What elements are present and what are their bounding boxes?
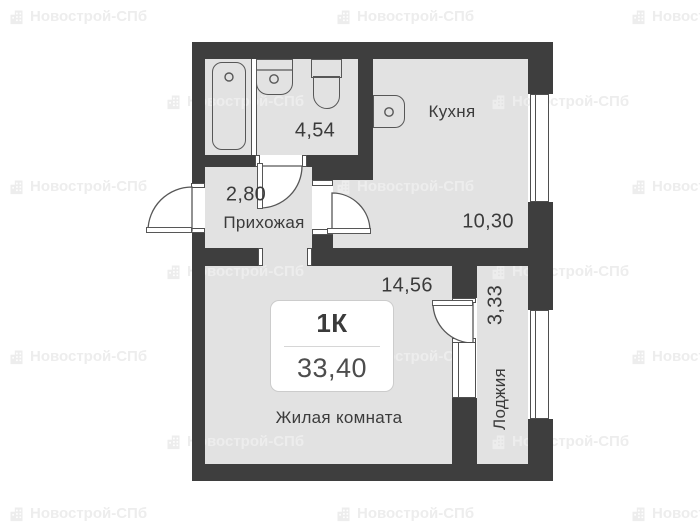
apartment-total-area: 33,40 xyxy=(271,347,393,392)
labels-layer: 4,54 Кухня 10,30 2,80 Прихожая 14,56 Жил… xyxy=(0,0,700,525)
hallway-name-label: Прихожая xyxy=(223,213,304,233)
kitchen-area-label: 10,30 xyxy=(462,211,514,234)
living-area-label: 14,56 xyxy=(381,275,433,298)
apartment-type: 1К xyxy=(271,301,393,346)
living-name-label: Жилая комната xyxy=(276,408,403,428)
loggia-name-label: Лоджия xyxy=(490,368,510,430)
kitchen-name-label: Кухня xyxy=(429,102,476,122)
loggia-area-label: 3,33 xyxy=(485,285,508,325)
bathroom-area-label: 4,54 xyxy=(295,120,335,143)
floor-plan: Новострой-СПбНовострой-СПбНовострой-СПбН… xyxy=(0,0,700,525)
hallway-area-label: 2,80 xyxy=(226,184,266,207)
apartment-card: 1К 33,40 xyxy=(270,300,394,392)
